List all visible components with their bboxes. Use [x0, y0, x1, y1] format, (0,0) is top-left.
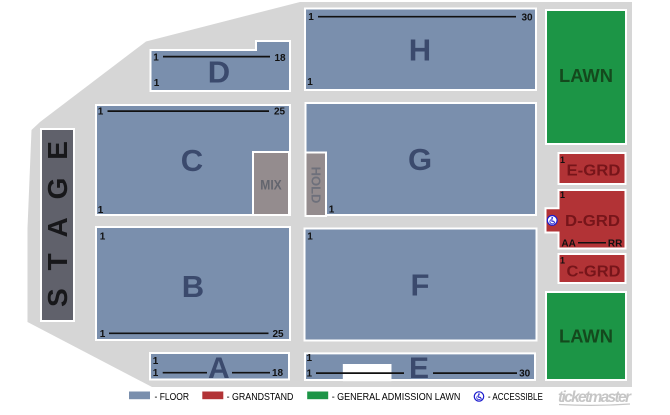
svg-text:- FLOOR: - FLOOR — [155, 391, 190, 403]
svg-text:1: 1 — [154, 78, 160, 89]
svg-text:25: 25 — [272, 329, 284, 340]
svg-text:18: 18 — [272, 368, 284, 379]
svg-text:1: 1 — [560, 155, 565, 165]
svg-text:1: 1 — [329, 204, 335, 215]
svg-text:1: 1 — [100, 329, 106, 340]
svg-text:- GENERAL ADMISSION LAWN: - GENERAL ADMISSION LAWN — [332, 391, 461, 403]
svg-text:1: 1 — [307, 232, 313, 243]
svg-text:H: H — [409, 33, 431, 68]
svg-text:1: 1 — [98, 107, 104, 118]
svg-text:G: G — [408, 142, 432, 177]
svg-text:1: 1 — [153, 356, 159, 367]
svg-text:D: D — [208, 55, 230, 90]
svg-text:D-GRD: D-GRD — [565, 213, 620, 230]
svg-text:C-GRD: C-GRD — [567, 264, 621, 281]
svg-text:LAWN: LAWN — [559, 66, 613, 86]
svg-text:A: A — [208, 352, 230, 385]
svg-text:30: 30 — [519, 369, 531, 380]
svg-text:1: 1 — [153, 52, 159, 63]
svg-text:B: B — [182, 269, 204, 304]
svg-text:1: 1 — [307, 369, 313, 380]
svg-text:25: 25 — [274, 107, 286, 118]
svg-text:18: 18 — [274, 53, 286, 64]
svg-text:- GRANDSTAND: - GRANDSTAND — [227, 391, 294, 403]
svg-text:LAWN: LAWN — [559, 327, 613, 347]
svg-text:1: 1 — [307, 353, 313, 364]
svg-text:30: 30 — [521, 13, 533, 24]
svg-text:C: C — [181, 143, 203, 178]
svg-text:E-GRD: E-GRD — [567, 163, 621, 180]
svg-text:F: F — [411, 268, 430, 303]
svg-text:RR: RR — [608, 239, 623, 250]
svg-text:1: 1 — [153, 368, 159, 379]
svg-text:1: 1 — [560, 256, 565, 266]
svg-text:ticketmaster: ticketmaster — [558, 389, 632, 406]
svg-text:1: 1 — [100, 232, 106, 243]
svg-text:- ACCESSIBLE: - ACCESSIBLE — [488, 391, 543, 403]
svg-text:1: 1 — [307, 77, 313, 88]
svg-text:E: E — [409, 352, 429, 385]
svg-text:1: 1 — [560, 190, 565, 200]
svg-text:MIX: MIX — [260, 178, 282, 193]
svg-text:AA: AA — [561, 239, 575, 250]
svg-text:1: 1 — [98, 205, 104, 216]
svg-text:HOLD: HOLD — [308, 167, 323, 204]
svg-text:1: 1 — [308, 12, 314, 23]
